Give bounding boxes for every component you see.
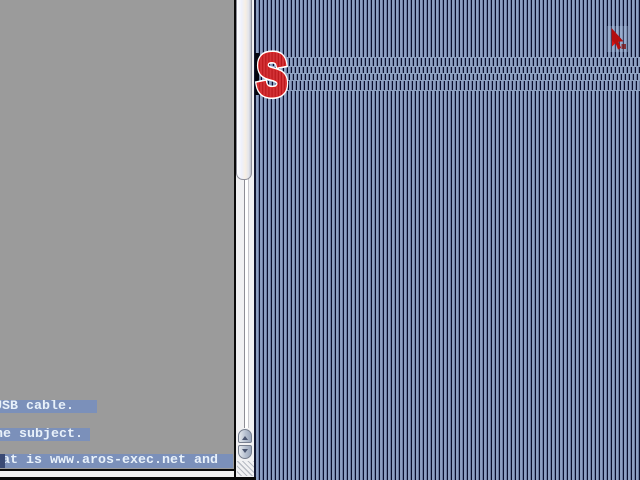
svg-text:S: S <box>257 48 287 102</box>
